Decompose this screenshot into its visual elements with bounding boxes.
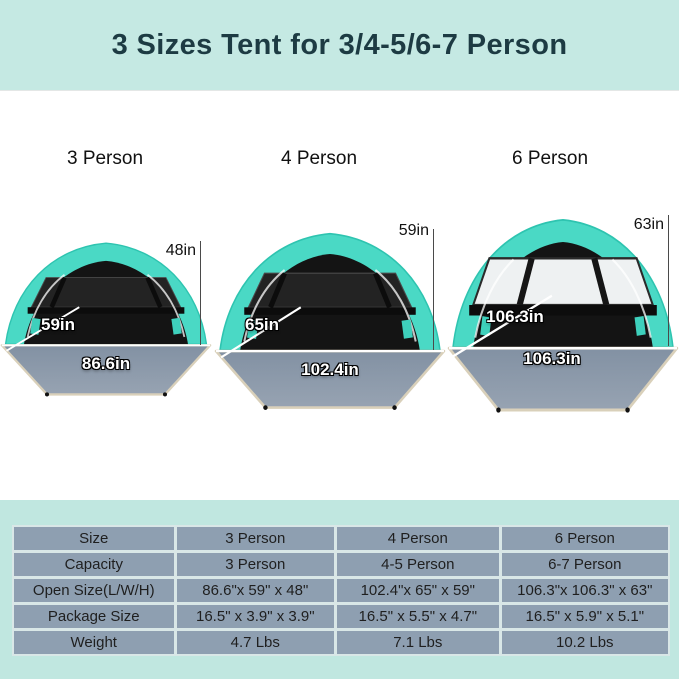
tent-caption-6-person: 6 Person [495,148,605,170]
spec-cell: 102.4"x 65" x 59" [337,579,499,602]
height-measure-line-tent3 [668,215,669,346]
width-dimension-label-tent2: 102.4in [214,360,446,380]
spec-cell: 106.3"x 106.3" x 63" [502,579,668,602]
height-dimension-label-tent2: 59in [383,222,429,240]
depth-dimension-label-tent3: 106.3in [475,307,555,327]
spec-cell: 3 Person [177,527,335,550]
spec-cell: 4-5 Person [337,553,499,576]
depth-dimension-label-tent2: 65in [232,315,292,335]
height-dimension-label-tent1: 48in [150,242,196,260]
spec-table: Size 3 Person 4 Person 6 Person Capacity… [12,525,670,656]
spec-cell: 16.5" x 5.5" x 4.7" [337,605,499,628]
spec-cell: 16.5" x 3.9" x 3.9" [177,605,335,628]
width-dimension-label-tent3: 106.3in [437,349,667,369]
height-measure-line-tent2 [433,229,434,350]
depth-dimension-label-tent1: 59in [28,315,88,335]
spec-cell: 16.5" x 5.9" x 5.1" [502,605,668,628]
spec-row-label-package-size: Package Size [14,605,174,628]
spec-cell: 6-7 Person [502,553,668,576]
spec-row-label-size: Size [14,527,174,550]
spec-cell: 86.6"x 59" x 48" [177,579,335,602]
spec-cell: 3 Person [177,553,335,576]
spec-cell: 7.1 Lbs [337,631,499,654]
spec-cell: 4 Person [337,527,499,550]
width-dimension-label-tent1: 86.6in [0,354,212,374]
spec-section: Size 3 Person 4 Person 6 Person Capacity… [0,500,679,679]
tent-caption-4-person: 4 Person [264,148,374,170]
spec-row-label-open-size: Open Size(L/W/H) [14,579,174,602]
spec-cell: 6 Person [502,527,668,550]
tent-caption-3-person: 3 Person [50,148,160,170]
spec-row-label-capacity: Capacity [14,553,174,576]
height-dimension-label-tent3: 63in [618,216,664,234]
spec-cell: 10.2 Lbs [502,631,668,654]
banner: 3 Sizes Tent for 3/4-5/6-7 Person [0,0,679,91]
height-measure-line-tent1 [200,241,201,345]
spec-cell: 4.7 Lbs [177,631,335,654]
spec-row-label-weight: Weight [14,631,174,654]
page-title: 3 Sizes Tent for 3/4-5/6-7 Person [112,29,568,62]
